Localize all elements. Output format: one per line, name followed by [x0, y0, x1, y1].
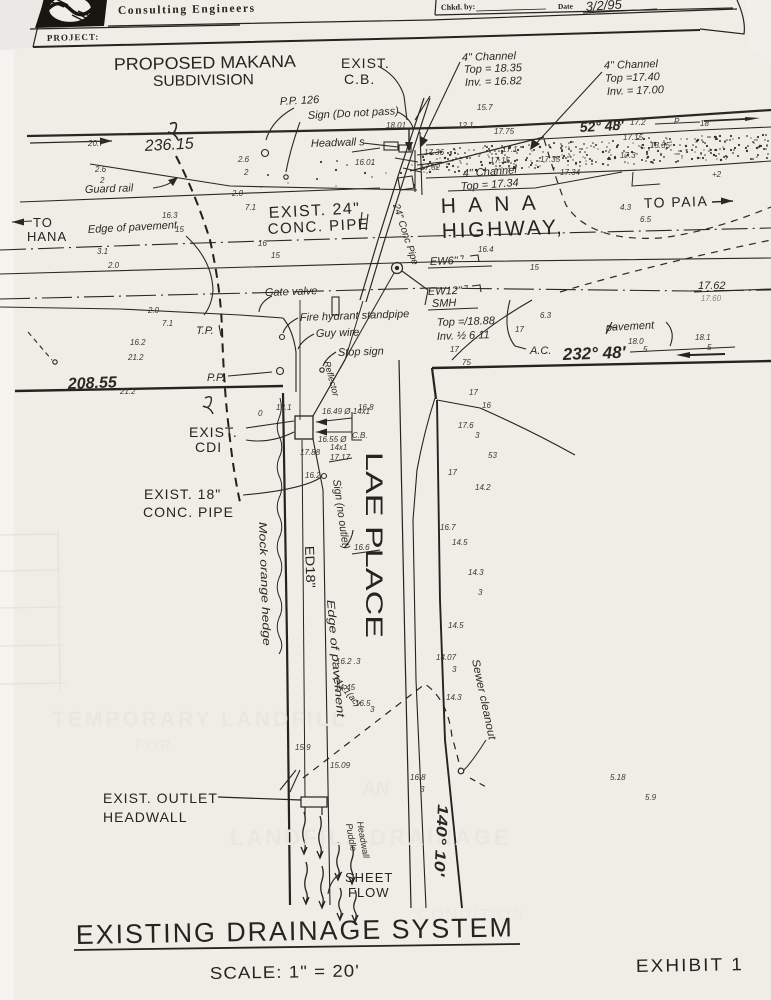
svg-text:4" Channel: 4" Channel	[604, 58, 659, 72]
svg-text:17.34: 17.34	[560, 168, 581, 177]
svg-text:17: 17	[612, 123, 621, 132]
svg-text:C.B.: C.B.	[344, 71, 375, 87]
svg-text:LANDFILL DRAINAGE: LANDFILL DRAINAGE	[230, 825, 512, 850]
svg-text:2: 2	[99, 176, 105, 185]
svg-text:14.3: 14.3	[468, 568, 484, 577]
svg-text:15: 15	[271, 251, 280, 260]
svg-text:53: 53	[488, 451, 497, 460]
svg-text:CDI: CDI	[195, 439, 222, 455]
svg-text:P: P	[674, 117, 680, 126]
svg-text:P.P. 126: P.P. 126	[280, 94, 321, 108]
svg-text:3: 3	[475, 431, 480, 440]
svg-text:17.17: 17.17	[330, 453, 351, 462]
svg-text:SMH: SMH	[432, 297, 457, 310]
svg-text:236.15: 236.15	[143, 135, 194, 155]
svg-text:14x1: 14x1	[330, 443, 347, 452]
svg-text:FLOW: FLOW	[348, 885, 390, 900]
svg-text:0: 0	[258, 409, 263, 418]
svg-text:SUBDIVISION: SUBDIVISION	[153, 71, 254, 90]
svg-text:EXIST.: EXIST.	[341, 55, 390, 71]
svg-text:6.3: 6.3	[540, 311, 552, 320]
svg-text:17.75: 17.75	[494, 127, 515, 136]
svg-text:+2: +2	[712, 170, 722, 179]
svg-text:16.2: 16.2	[130, 338, 146, 347]
svg-text:18.0: 18.0	[628, 337, 644, 346]
svg-text:17.6: 17.6	[458, 421, 474, 430]
svg-text:75: 75	[462, 358, 471, 367]
svg-text:PROJECT:: PROJECT:	[47, 32, 100, 43]
svg-text:EXIST.: EXIST.	[189, 424, 238, 440]
svg-text:SCALE: 1" = 20': SCALE: 1" = 20'	[210, 961, 360, 983]
svg-text:A.C.: A.C.	[529, 345, 551, 357]
svg-text:PROPOSED MAKANA: PROPOSED MAKANA	[114, 52, 297, 74]
svg-text:5: 5	[707, 343, 712, 352]
svg-text:14.2: 14.2	[475, 483, 491, 492]
svg-text:TO: TO	[33, 215, 53, 230]
svg-text:17.32: 17.32	[420, 163, 441, 172]
svg-text:15: 15	[530, 263, 539, 272]
svg-text:P.P.: P.P.	[207, 372, 225, 384]
svg-text:T.P.: T.P.	[196, 325, 214, 337]
svg-text:16.49 Ø 14x1: 16.49 Ø 14x1	[322, 407, 370, 416]
svg-text:14.3: 14.3	[446, 693, 462, 702]
svg-text:TO PAIA: TO PAIA	[644, 193, 709, 211]
svg-text:12.1: 12.1	[458, 121, 474, 130]
svg-text:HANA: HANA	[27, 229, 67, 244]
svg-text:Date: Date	[558, 2, 574, 11]
svg-text:17.62: 17.62	[698, 280, 726, 292]
svg-text:16.8: 16.8	[410, 773, 426, 782]
svg-text:5.18: 5.18	[610, 773, 626, 782]
svg-text:17: 17	[469, 388, 478, 397]
svg-text:SHEET: SHEET	[345, 870, 393, 885]
svg-text:3: 3	[478, 588, 483, 597]
svg-text:EXIST. 18": EXIST. 18"	[144, 486, 221, 502]
svg-text:Headwall s: Headwall s	[311, 136, 366, 150]
svg-text:17.15: 17.15	[623, 133, 644, 142]
svg-text:16.4: 16.4	[478, 245, 494, 254]
svg-text:EW12"⌝: EW12"⌝	[428, 285, 469, 298]
svg-text:14.07: 14.07	[436, 653, 457, 662]
svg-text:18.01: 18.01	[386, 121, 406, 130]
svg-text:14.5: 14.5	[448, 621, 464, 630]
svg-text:TEMPORARY LANDFILL: TEMPORARY LANDFILL	[52, 708, 348, 731]
svg-text:17.2: 17.2	[630, 118, 646, 127]
svg-text:7.1: 7.1	[245, 203, 256, 212]
svg-text:3: 3	[420, 785, 425, 794]
svg-text:Top =17.40: Top =17.40	[605, 71, 661, 85]
svg-text:15.9: 15.9	[295, 743, 311, 752]
svg-text:Top = 18.35: Top = 18.35	[464, 62, 523, 76]
svg-text:Chkd. by:: Chkd. by:	[441, 2, 475, 12]
svg-text:208.55: 208.55	[67, 374, 119, 393]
svg-text:17.15: 17.15	[490, 156, 511, 165]
svg-text:17.1: 17.1	[502, 145, 518, 154]
svg-text:15: 15	[175, 225, 184, 234]
svg-text:AN: AN	[362, 779, 389, 800]
svg-text:2.6: 2.6	[237, 155, 250, 164]
svg-text:16: 16	[258, 239, 267, 248]
svg-text:EW6"⌝: EW6"⌝	[430, 255, 465, 268]
svg-text:5.9: 5.9	[645, 793, 657, 802]
svg-text:21.2: 21.2	[119, 387, 136, 396]
svg-text:ED18": ED18"	[302, 546, 318, 589]
svg-text:16.01: 16.01	[355, 158, 375, 167]
svg-text:CONC. PIPE: CONC. PIPE	[143, 504, 234, 520]
svg-text:2.0: 2.0	[107, 261, 120, 270]
svg-text:Inv. = 16.82: Inv. = 16.82	[465, 75, 522, 89]
svg-text:15.7: 15.7	[477, 103, 493, 112]
svg-text:18: 18	[700, 119, 709, 128]
svg-text:17.60: 17.60	[701, 294, 722, 303]
svg-text:232° 48': 232° 48'	[561, 343, 626, 364]
svg-text:C.B.: C.B.	[352, 431, 368, 440]
svg-text:3.1: 3.1	[97, 247, 108, 256]
svg-text:17: 17	[448, 468, 457, 477]
svg-text:Guy wire: Guy wire	[316, 326, 360, 340]
svg-text:4.3: 4.3	[620, 203, 632, 212]
svg-text:EXHIBIT 1: EXHIBIT 1	[636, 954, 744, 976]
svg-text:Consulting Engineers: Consulting Engineers	[118, 3, 256, 17]
svg-text:17.3: 17.3	[620, 151, 636, 160]
svg-text:Stop sign: Stop sign	[338, 345, 384, 359]
svg-text:2.0: 2.0	[231, 189, 244, 198]
svg-text:Inv. = 17.00: Inv. = 17.00	[607, 84, 665, 98]
svg-text:6.5: 6.5	[640, 215, 652, 224]
svg-text:17.36: 17.36	[424, 148, 445, 157]
svg-text:21.2: 21.2	[127, 353, 144, 362]
svg-text:16.2: 16.2	[305, 471, 321, 480]
svg-text:Gate valve: Gate valve	[265, 285, 318, 299]
svg-text:Guard rail: Guard rail	[85, 182, 134, 196]
svg-text:17.35: 17.35	[540, 155, 561, 164]
svg-text:13.35: 13.35	[650, 141, 671, 150]
svg-text:14.5: 14.5	[452, 538, 468, 547]
svg-text:2.0: 2.0	[147, 306, 160, 315]
svg-text:16.7: 16.7	[440, 523, 456, 532]
svg-text:17: 17	[515, 325, 524, 334]
svg-text:2.6: 2.6	[94, 165, 107, 174]
svg-text:HIGHWAY,: HIGHWAY,	[441, 216, 562, 243]
svg-text:HEADWALL: HEADWALL	[103, 809, 188, 825]
svg-text:16.5: 16.5	[355, 699, 371, 708]
svg-text:EXIST. OUTLET: EXIST. OUTLET	[103, 790, 218, 806]
svg-text:16.3: 16.3	[162, 211, 178, 220]
svg-text:20.7: 20.7	[87, 139, 104, 148]
svg-text:7.1: 7.1	[162, 319, 173, 328]
svg-text:Top =/18.88: Top =/18.88	[437, 315, 496, 329]
svg-text:FOR: FOR	[135, 737, 173, 754]
svg-text:17.88: 17.88	[300, 448, 321, 457]
svg-text:16: 16	[482, 401, 491, 410]
svg-text:18.1: 18.1	[695, 333, 711, 342]
svg-text:Inv. ½ 6.11: Inv. ½ 6.11	[437, 329, 490, 343]
svg-text:16.2 .3: 16.2 .3	[336, 657, 361, 666]
svg-text:16.6: 16.6	[354, 543, 370, 552]
svg-text:5: 5	[643, 345, 648, 354]
svg-text:15.09: 15.09	[330, 761, 351, 770]
svg-text:3: 3	[370, 705, 375, 714]
svg-text:3: 3	[452, 665, 457, 674]
svg-text:14.45: 14.45	[335, 683, 356, 692]
svg-text:17: 17	[450, 345, 459, 354]
svg-text:2: 2	[243, 168, 249, 177]
svg-text:18.1: 18.1	[276, 403, 292, 412]
